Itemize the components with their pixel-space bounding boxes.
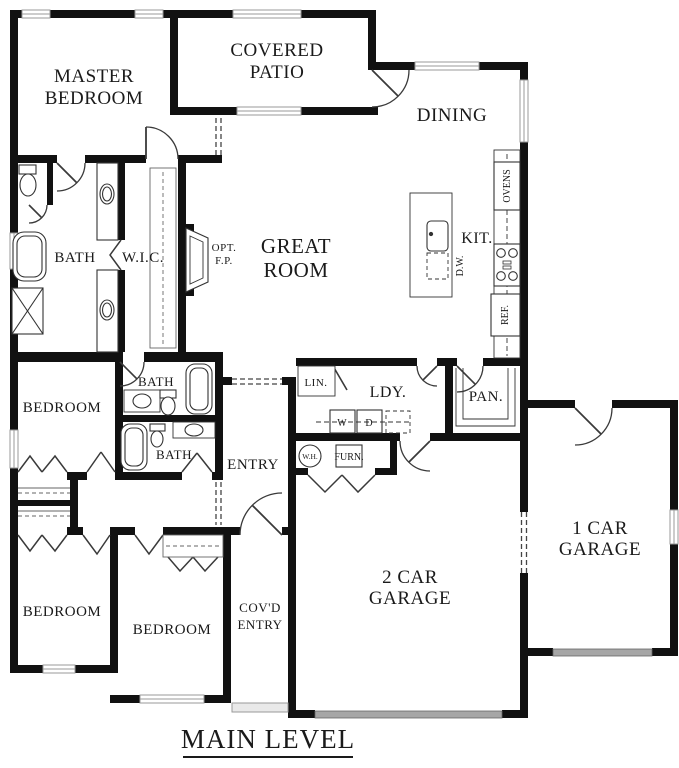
window — [233, 10, 301, 18]
room-label-covered-patio: PATIO — [250, 62, 305, 83]
plan-title-text: MAIN LEVEL — [181, 724, 355, 754]
toilet — [19, 165, 36, 196]
room-label-entry: ENTRY — [227, 457, 279, 473]
room-label-bedroom-4: BEDROOM — [133, 622, 212, 638]
window — [140, 695, 204, 703]
room-label-master-bedroom: BEDROOM — [45, 88, 144, 109]
room-label-1car-garage: 1 CAR — [572, 518, 628, 539]
label-opt-fp: OPT. — [212, 242, 237, 254]
room-label-1car-garage: GARAGE — [559, 539, 641, 560]
label-dryer: D — [365, 418, 372, 429]
shower — [12, 288, 43, 334]
room-label-great-room: GREAT — [261, 234, 331, 258]
room-label-2car-garage: GARAGE — [369, 588, 451, 609]
room-label-master-bedroom: MASTER — [54, 66, 134, 87]
cooktop — [494, 244, 520, 286]
label-water-heater: W.H. — [302, 452, 318, 461]
room-label-wic: W.I.C. — [122, 250, 164, 266]
garage-door-2car — [315, 711, 502, 718]
window — [520, 80, 528, 142]
label-opt-fp: F.P. — [215, 255, 233, 267]
room-label-bedroom-3: BEDROOM — [23, 604, 102, 620]
bathtub — [186, 364, 212, 414]
window — [670, 510, 678, 544]
bathtub — [121, 424, 147, 470]
toilet — [160, 390, 176, 415]
vanity-sink — [124, 390, 160, 412]
room-label-kitchen: KIT. — [461, 230, 492, 247]
room-label-2car-garage: 2 CAR — [382, 567, 438, 588]
vanity-sink — [97, 270, 118, 352]
room-label-bath-3: BATH — [156, 447, 192, 462]
toilet — [150, 424, 165, 447]
window — [10, 430, 18, 468]
label-ref: REF. — [500, 305, 511, 325]
window — [135, 10, 163, 18]
label-washer: W — [337, 418, 347, 429]
fireplace — [186, 228, 208, 292]
label-ovens: OVENS — [502, 169, 513, 202]
label-dw: D.W. — [455, 256, 466, 277]
kitchen-island — [410, 193, 452, 297]
room-label-master-bath: BATH — [54, 250, 95, 266]
room-label-bedroom-2: BEDROOM — [23, 400, 102, 416]
window — [237, 107, 301, 115]
dashed-openings — [216, 118, 527, 573]
room-label-covd-entry: COV'D — [239, 600, 281, 615]
room-label-hall-bath: BATH — [138, 374, 174, 389]
room-label-great-room: ROOM — [263, 258, 328, 282]
plan-title: MAIN LEVEL — [181, 724, 355, 757]
bathtub — [13, 232, 46, 281]
vanity-sink — [97, 163, 118, 240]
floor-plan: MASTER BEDROOM COVERED PATIO DINING GREA… — [0, 0, 679, 768]
room-label-covd-entry: ENTRY — [237, 617, 282, 632]
walls — [10, 10, 678, 718]
window — [43, 665, 75, 673]
closet-rods — [18, 488, 223, 557]
vanity-sink — [173, 422, 215, 438]
room-label-laundry: LDY. — [370, 384, 407, 401]
garage-door-1car — [553, 649, 652, 656]
porch-edge — [232, 703, 288, 712]
room-label-covered-patio: COVERED — [230, 40, 323, 61]
window — [22, 10, 50, 18]
label-furnace: FURN. — [334, 452, 363, 463]
window — [415, 62, 479, 70]
room-label-pantry: PAN. — [469, 389, 503, 405]
room-label-dining: DINING — [417, 105, 488, 126]
room-label-linen: LIN. — [304, 377, 327, 389]
